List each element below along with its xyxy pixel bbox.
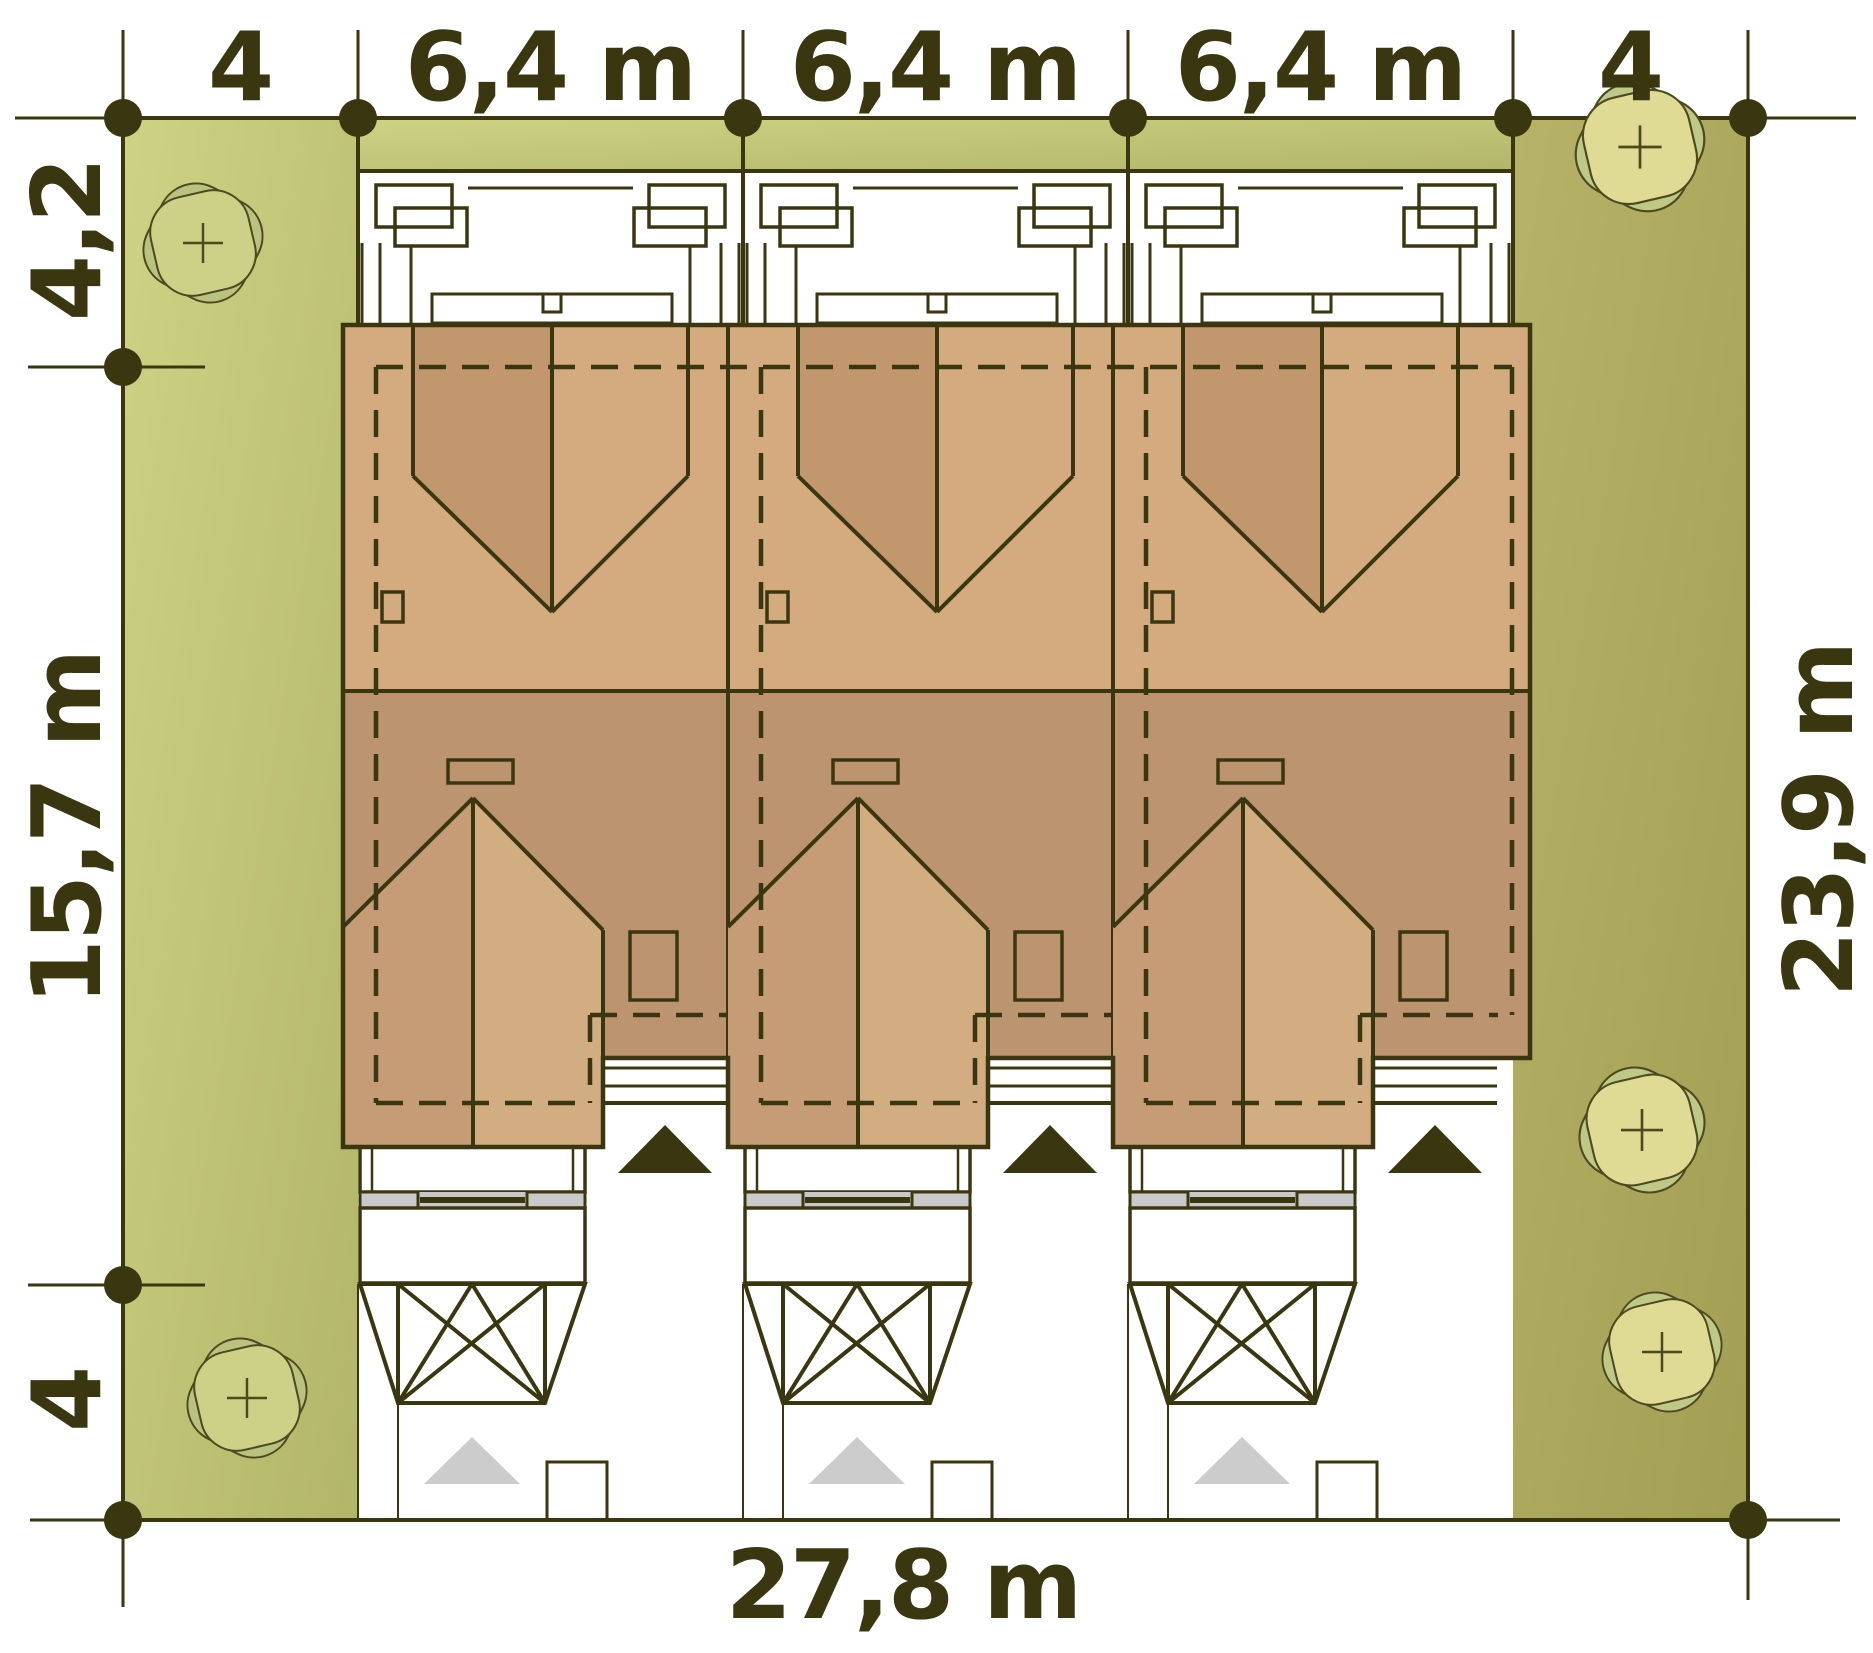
- dim-left-1: 15,7 m: [13, 651, 123, 1005]
- dim-top-3: 6,4 m: [1175, 13, 1465, 123]
- garden-top-strip: [358, 118, 1513, 171]
- dim-top-2: 6,4 m: [790, 13, 1080, 123]
- site-plan-page: 4 6,4 m 6,4 m 6,4 m 4 4,2 15,7 m 4 23,9 …: [0, 0, 1873, 1653]
- site-plan-drawing: 4 6,4 m 6,4 m 6,4 m 4 4,2 15,7 m 4 23,9 …: [0, 0, 1873, 1653]
- dim-left-2: 4: [13, 1368, 123, 1432]
- dim-right-0: 23,9 m: [1765, 643, 1873, 997]
- dim-top-4: 4: [1598, 13, 1662, 123]
- dim-top-0: 4: [208, 13, 272, 123]
- garden-left: [123, 118, 358, 1520]
- dim-bottom-0: 27,8 m: [726, 1531, 1080, 1641]
- dim-top-1: 6,4 m: [405, 13, 695, 123]
- dim-left-0: 4,2: [13, 159, 123, 321]
